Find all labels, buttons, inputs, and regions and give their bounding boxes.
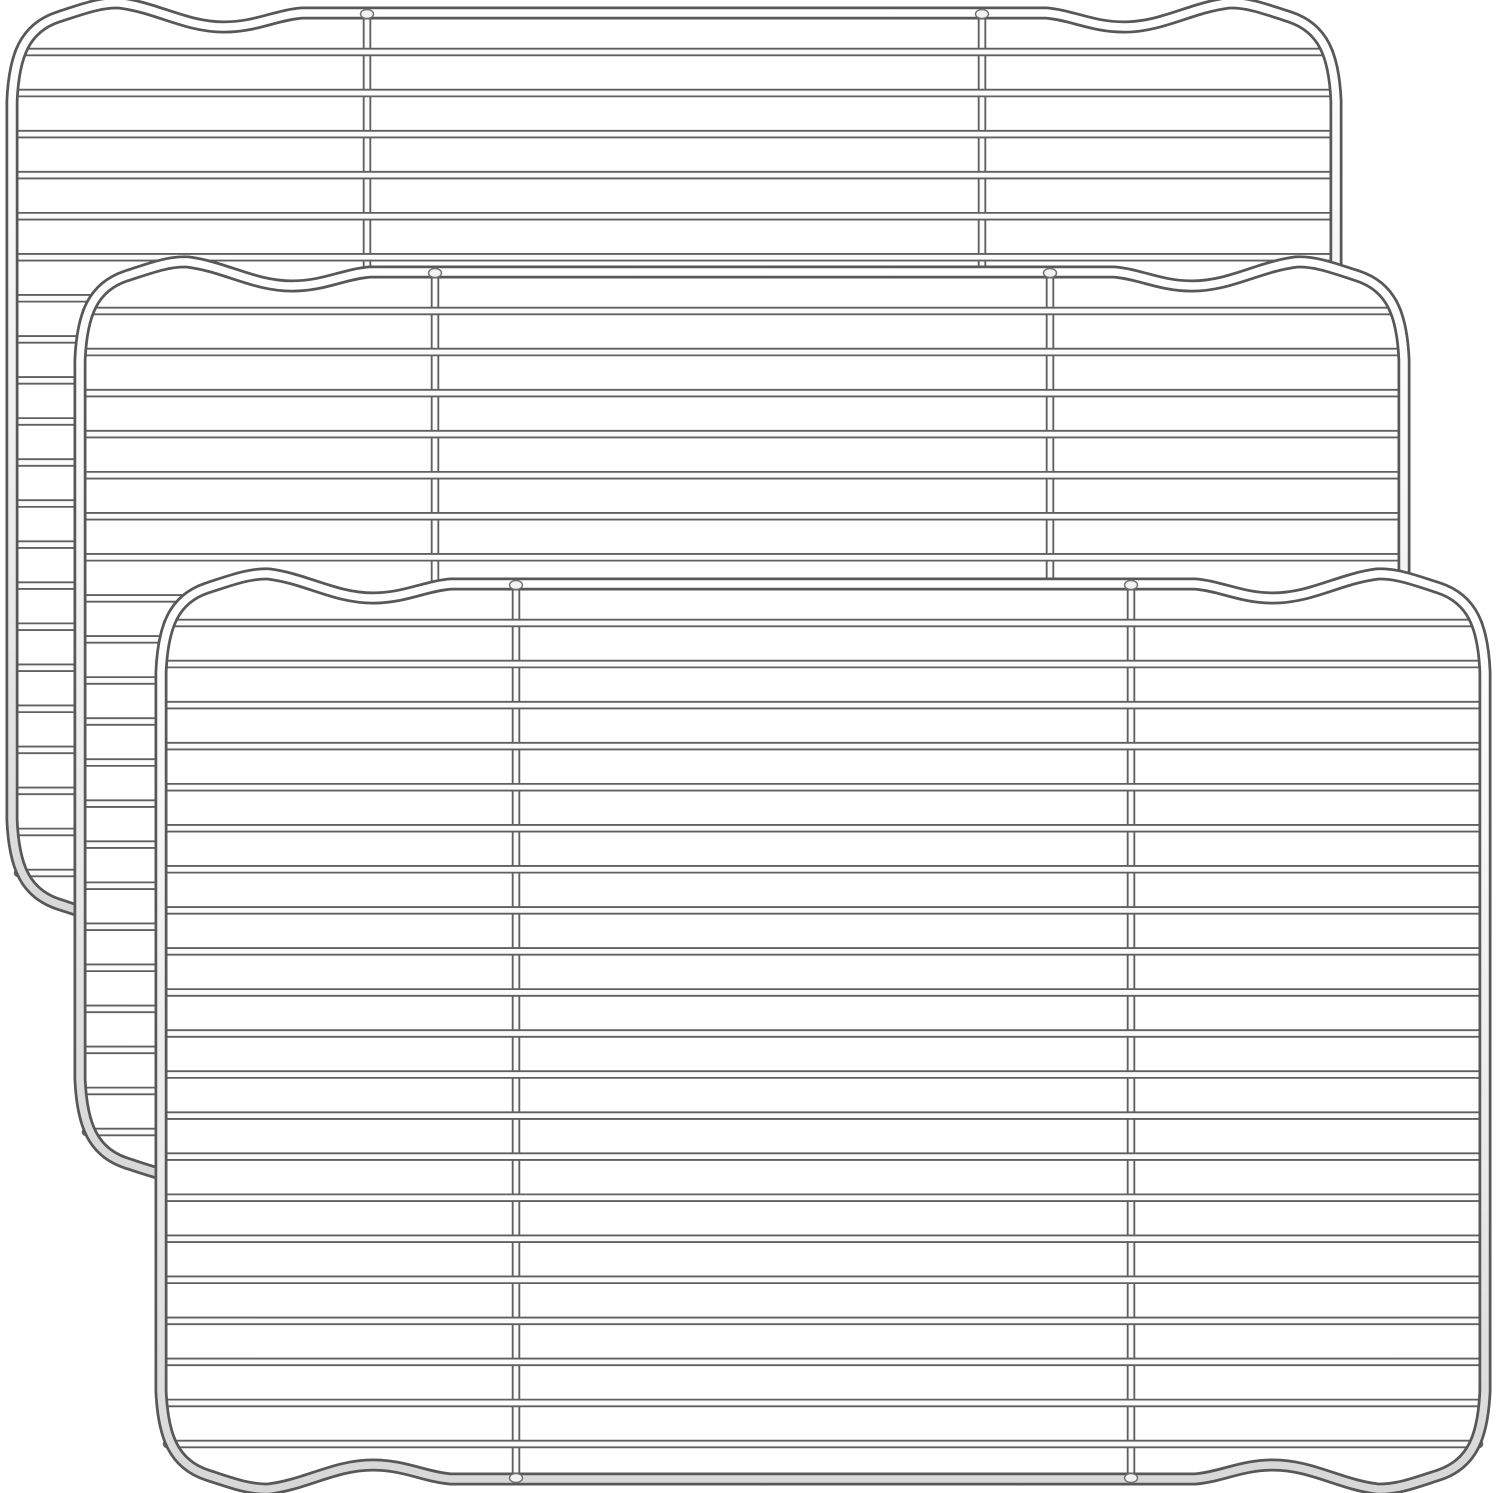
weld-joint: [429, 269, 442, 278]
cooling-rack-front: [161, 574, 1485, 1489]
weld-joint: [976, 10, 989, 19]
weld-joint: [1125, 1474, 1138, 1483]
weld-joint: [1044, 269, 1057, 278]
weld-joint: [510, 1474, 523, 1483]
racks-group: [12, 3, 1485, 1489]
weld-joint: [1125, 581, 1138, 590]
weld-joint: [361, 10, 374, 19]
weld-joint: [510, 581, 523, 590]
product-image: [0, 0, 1500, 1493]
cooling-racks-illustration: [0, 0, 1500, 1493]
